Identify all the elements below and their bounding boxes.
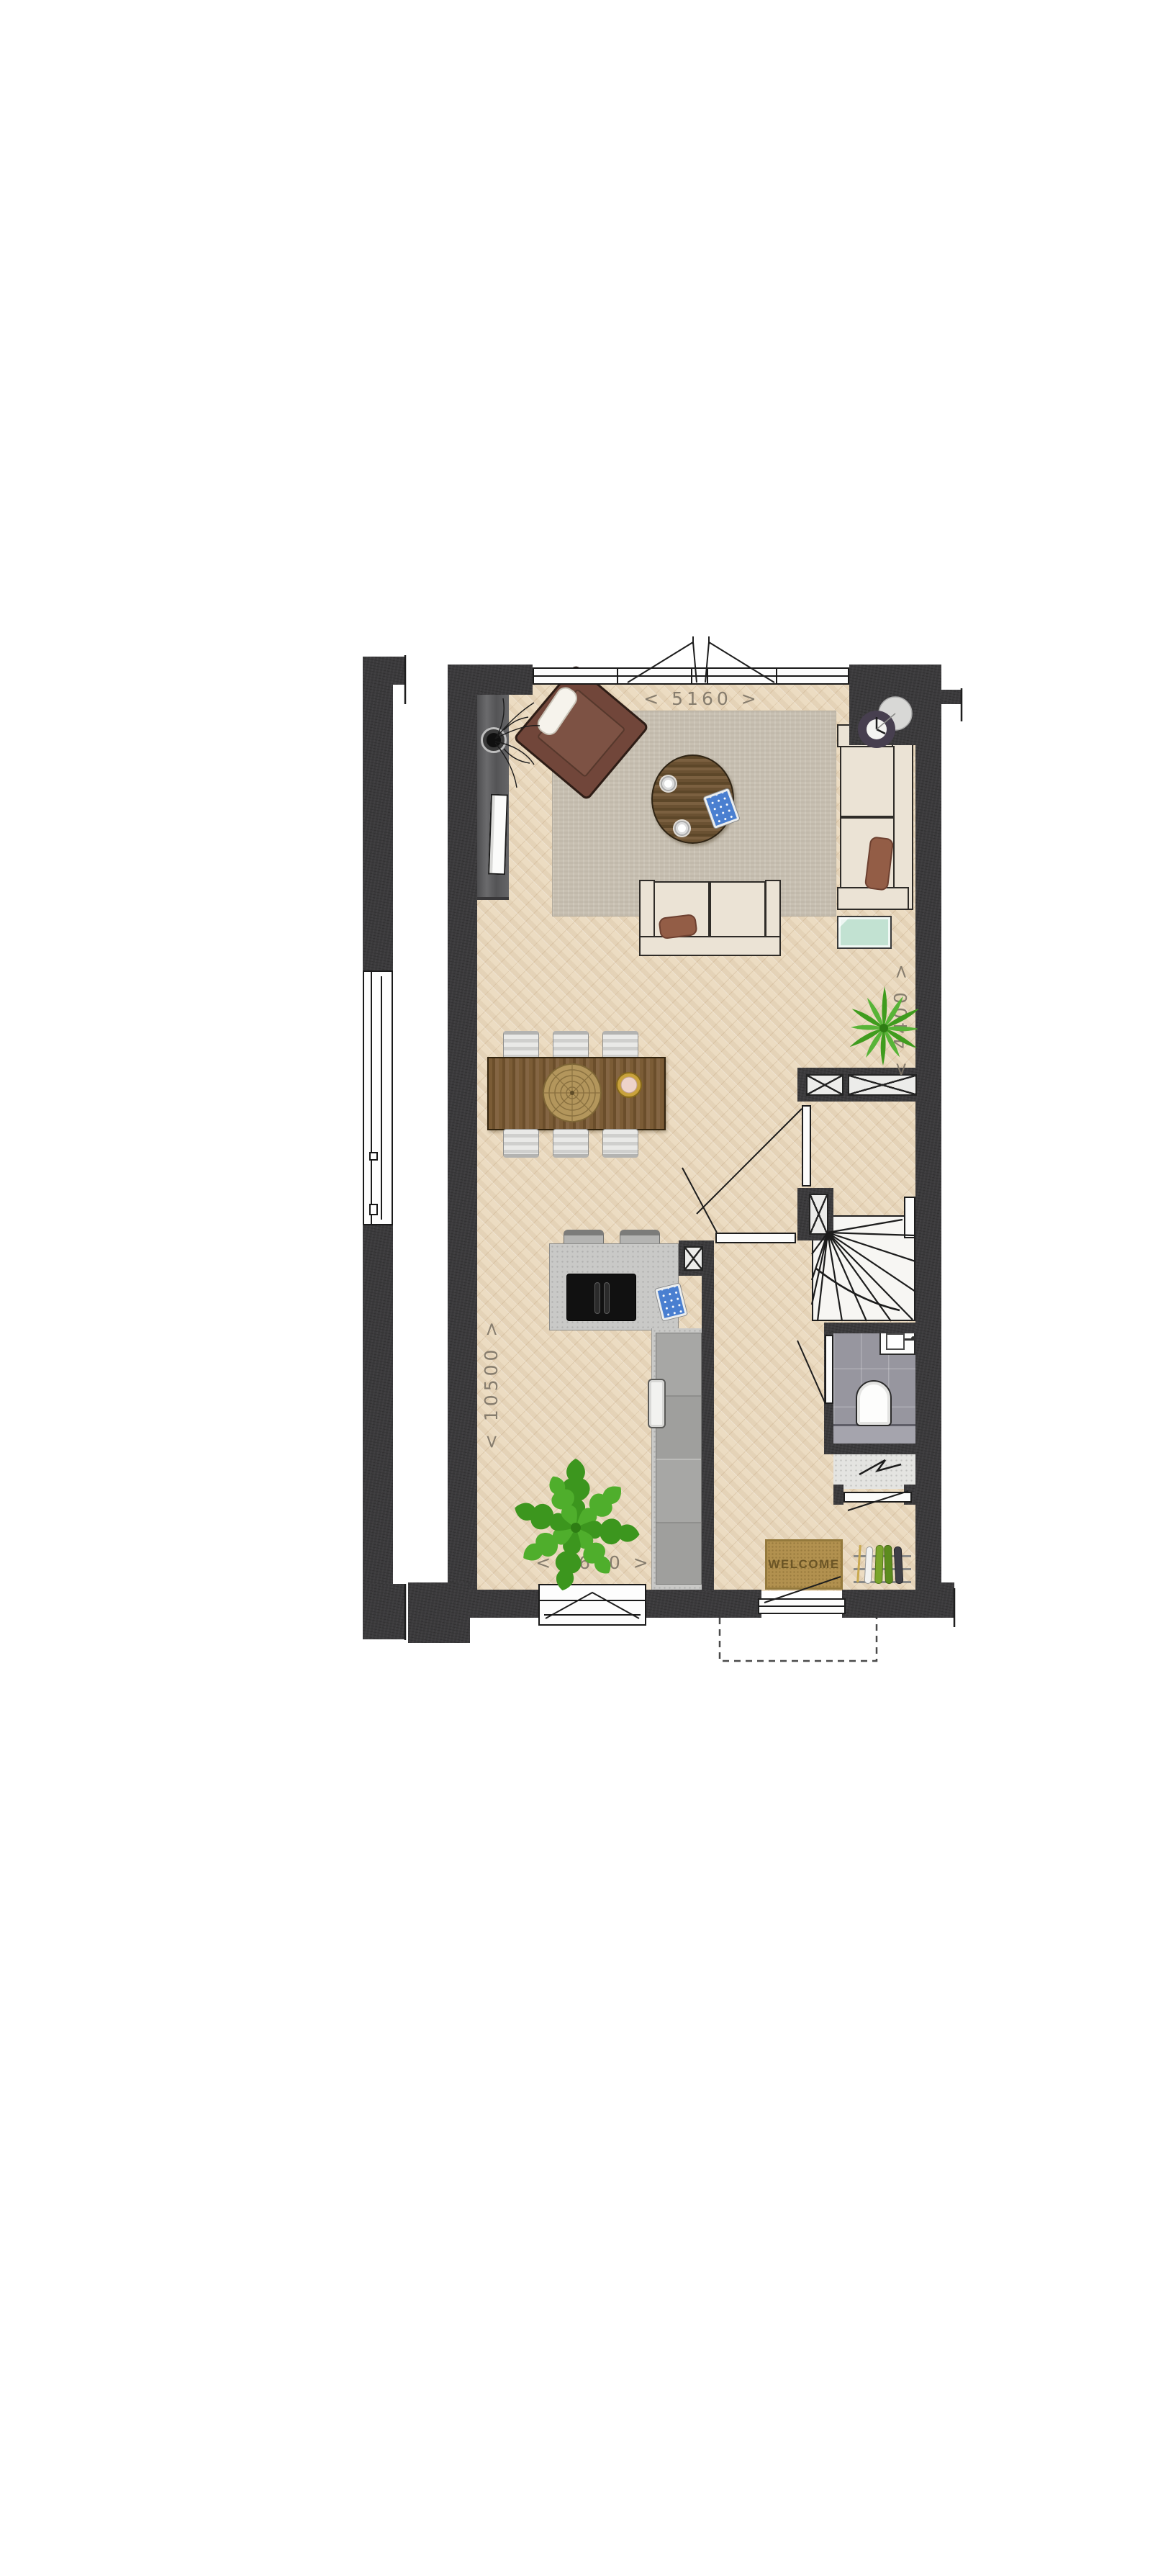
floor-plan-canvas: WELCOME bbox=[0, 0, 1176, 2576]
dining-chair bbox=[553, 1129, 589, 1158]
glass-side-table bbox=[837, 916, 892, 949]
shoe bbox=[894, 1546, 904, 1585]
exterior-wall-left bbox=[448, 665, 477, 1616]
front-door-threshold bbox=[758, 1598, 846, 1614]
cooktop-vent bbox=[594, 1282, 600, 1314]
dining-chair bbox=[503, 1129, 539, 1158]
dimension-label-depth-right: < 4400 > bbox=[890, 958, 910, 1080]
dining-chair bbox=[602, 1129, 638, 1158]
kitchen-cabinet-fronts bbox=[656, 1333, 702, 1585]
window-mullion bbox=[707, 669, 708, 683]
window-handle bbox=[369, 1152, 378, 1161]
party-wall-left-foot bbox=[363, 1584, 405, 1639]
exterior-wall-corner bbox=[408, 1582, 470, 1643]
meter-cupboard-floor bbox=[833, 1453, 915, 1489]
door-leaf-kitchen bbox=[715, 1233, 796, 1243]
exterior-wall-corner bbox=[448, 665, 533, 695]
toilet bbox=[856, 1380, 892, 1426]
duct-box bbox=[806, 1074, 843, 1096]
window-mullion bbox=[691, 669, 692, 683]
window-mullion bbox=[776, 669, 777, 683]
tv bbox=[488, 794, 508, 875]
duct-box bbox=[809, 1194, 828, 1235]
window-party-wall bbox=[363, 970, 393, 1225]
loveseat-pillow bbox=[658, 914, 697, 940]
cup bbox=[661, 776, 676, 791]
shoe-rack bbox=[854, 1549, 911, 1588]
porch-outline bbox=[720, 1618, 877, 1661]
loveseat-backrest bbox=[639, 936, 781, 956]
party-wall-left-head bbox=[363, 657, 405, 685]
exterior-wall-bottom bbox=[842, 1590, 941, 1618]
cooktop-vent bbox=[604, 1282, 610, 1314]
toilet-cistern-ledge bbox=[833, 1424, 915, 1446]
kitchen-sink bbox=[648, 1379, 666, 1428]
doormat-label: WELCOME bbox=[768, 1557, 839, 1572]
window-glazing-line bbox=[381, 976, 382, 1220]
duct-box bbox=[684, 1246, 703, 1271]
cooktop bbox=[566, 1274, 636, 1321]
threshold-line bbox=[759, 1606, 844, 1607]
party-wall-stub-right bbox=[941, 690, 962, 704]
window-glazing-line bbox=[544, 1614, 641, 1616]
door-leaf-meter bbox=[843, 1492, 912, 1503]
doormat: WELCOME bbox=[765, 1539, 843, 1590]
dimension-label-width: < 5160 > bbox=[641, 688, 763, 708]
sofa-seat-cushion bbox=[840, 746, 895, 817]
dining-chair bbox=[602, 1031, 638, 1060]
window-handle bbox=[369, 1204, 378, 1215]
interior-wall-meter bbox=[833, 1485, 843, 1505]
party-wall-left bbox=[363, 657, 393, 972]
stair-newel bbox=[904, 1197, 915, 1238]
sofa-backrest bbox=[892, 724, 913, 910]
door-leaf-living bbox=[802, 1105, 811, 1186]
dining-table bbox=[487, 1057, 666, 1130]
exterior-wall-right bbox=[915, 665, 941, 1616]
interior-wall-toilet bbox=[824, 1323, 915, 1333]
party-wall-stub-right bbox=[941, 1582, 954, 1618]
shoe bbox=[884, 1545, 893, 1584]
washbasin-bowl bbox=[886, 1333, 905, 1350]
interior-wall-toilet bbox=[824, 1444, 915, 1454]
window-mullion bbox=[617, 669, 618, 683]
cup bbox=[674, 821, 689, 836]
umbrella bbox=[856, 1545, 861, 1582]
vase bbox=[481, 727, 507, 753]
interior-wall-kitchen bbox=[702, 1276, 714, 1591]
window-glazing-line bbox=[540, 1600, 645, 1601]
dimension-label-kitchen-width: < 2660 > bbox=[533, 1552, 655, 1572]
sofa-armrest bbox=[837, 887, 909, 910]
shoe bbox=[864, 1546, 874, 1584]
dimension-label-depth-left: < 10500 > bbox=[481, 1327, 501, 1449]
dining-chair bbox=[553, 1031, 589, 1060]
kitchen-counter bbox=[651, 1328, 704, 1590]
window-glazing-line bbox=[371, 972, 372, 1224]
window-garden bbox=[533, 667, 849, 685]
window-kitchen bbox=[538, 1584, 646, 1626]
door-leaf-toilet bbox=[825, 1335, 833, 1404]
loveseat-seat-cushion bbox=[710, 881, 766, 937]
exterior-wall-bottom bbox=[644, 1590, 761, 1618]
dining-chair bbox=[503, 1031, 539, 1060]
party-wall-left bbox=[363, 1224, 393, 1639]
shoe bbox=[874, 1545, 884, 1584]
